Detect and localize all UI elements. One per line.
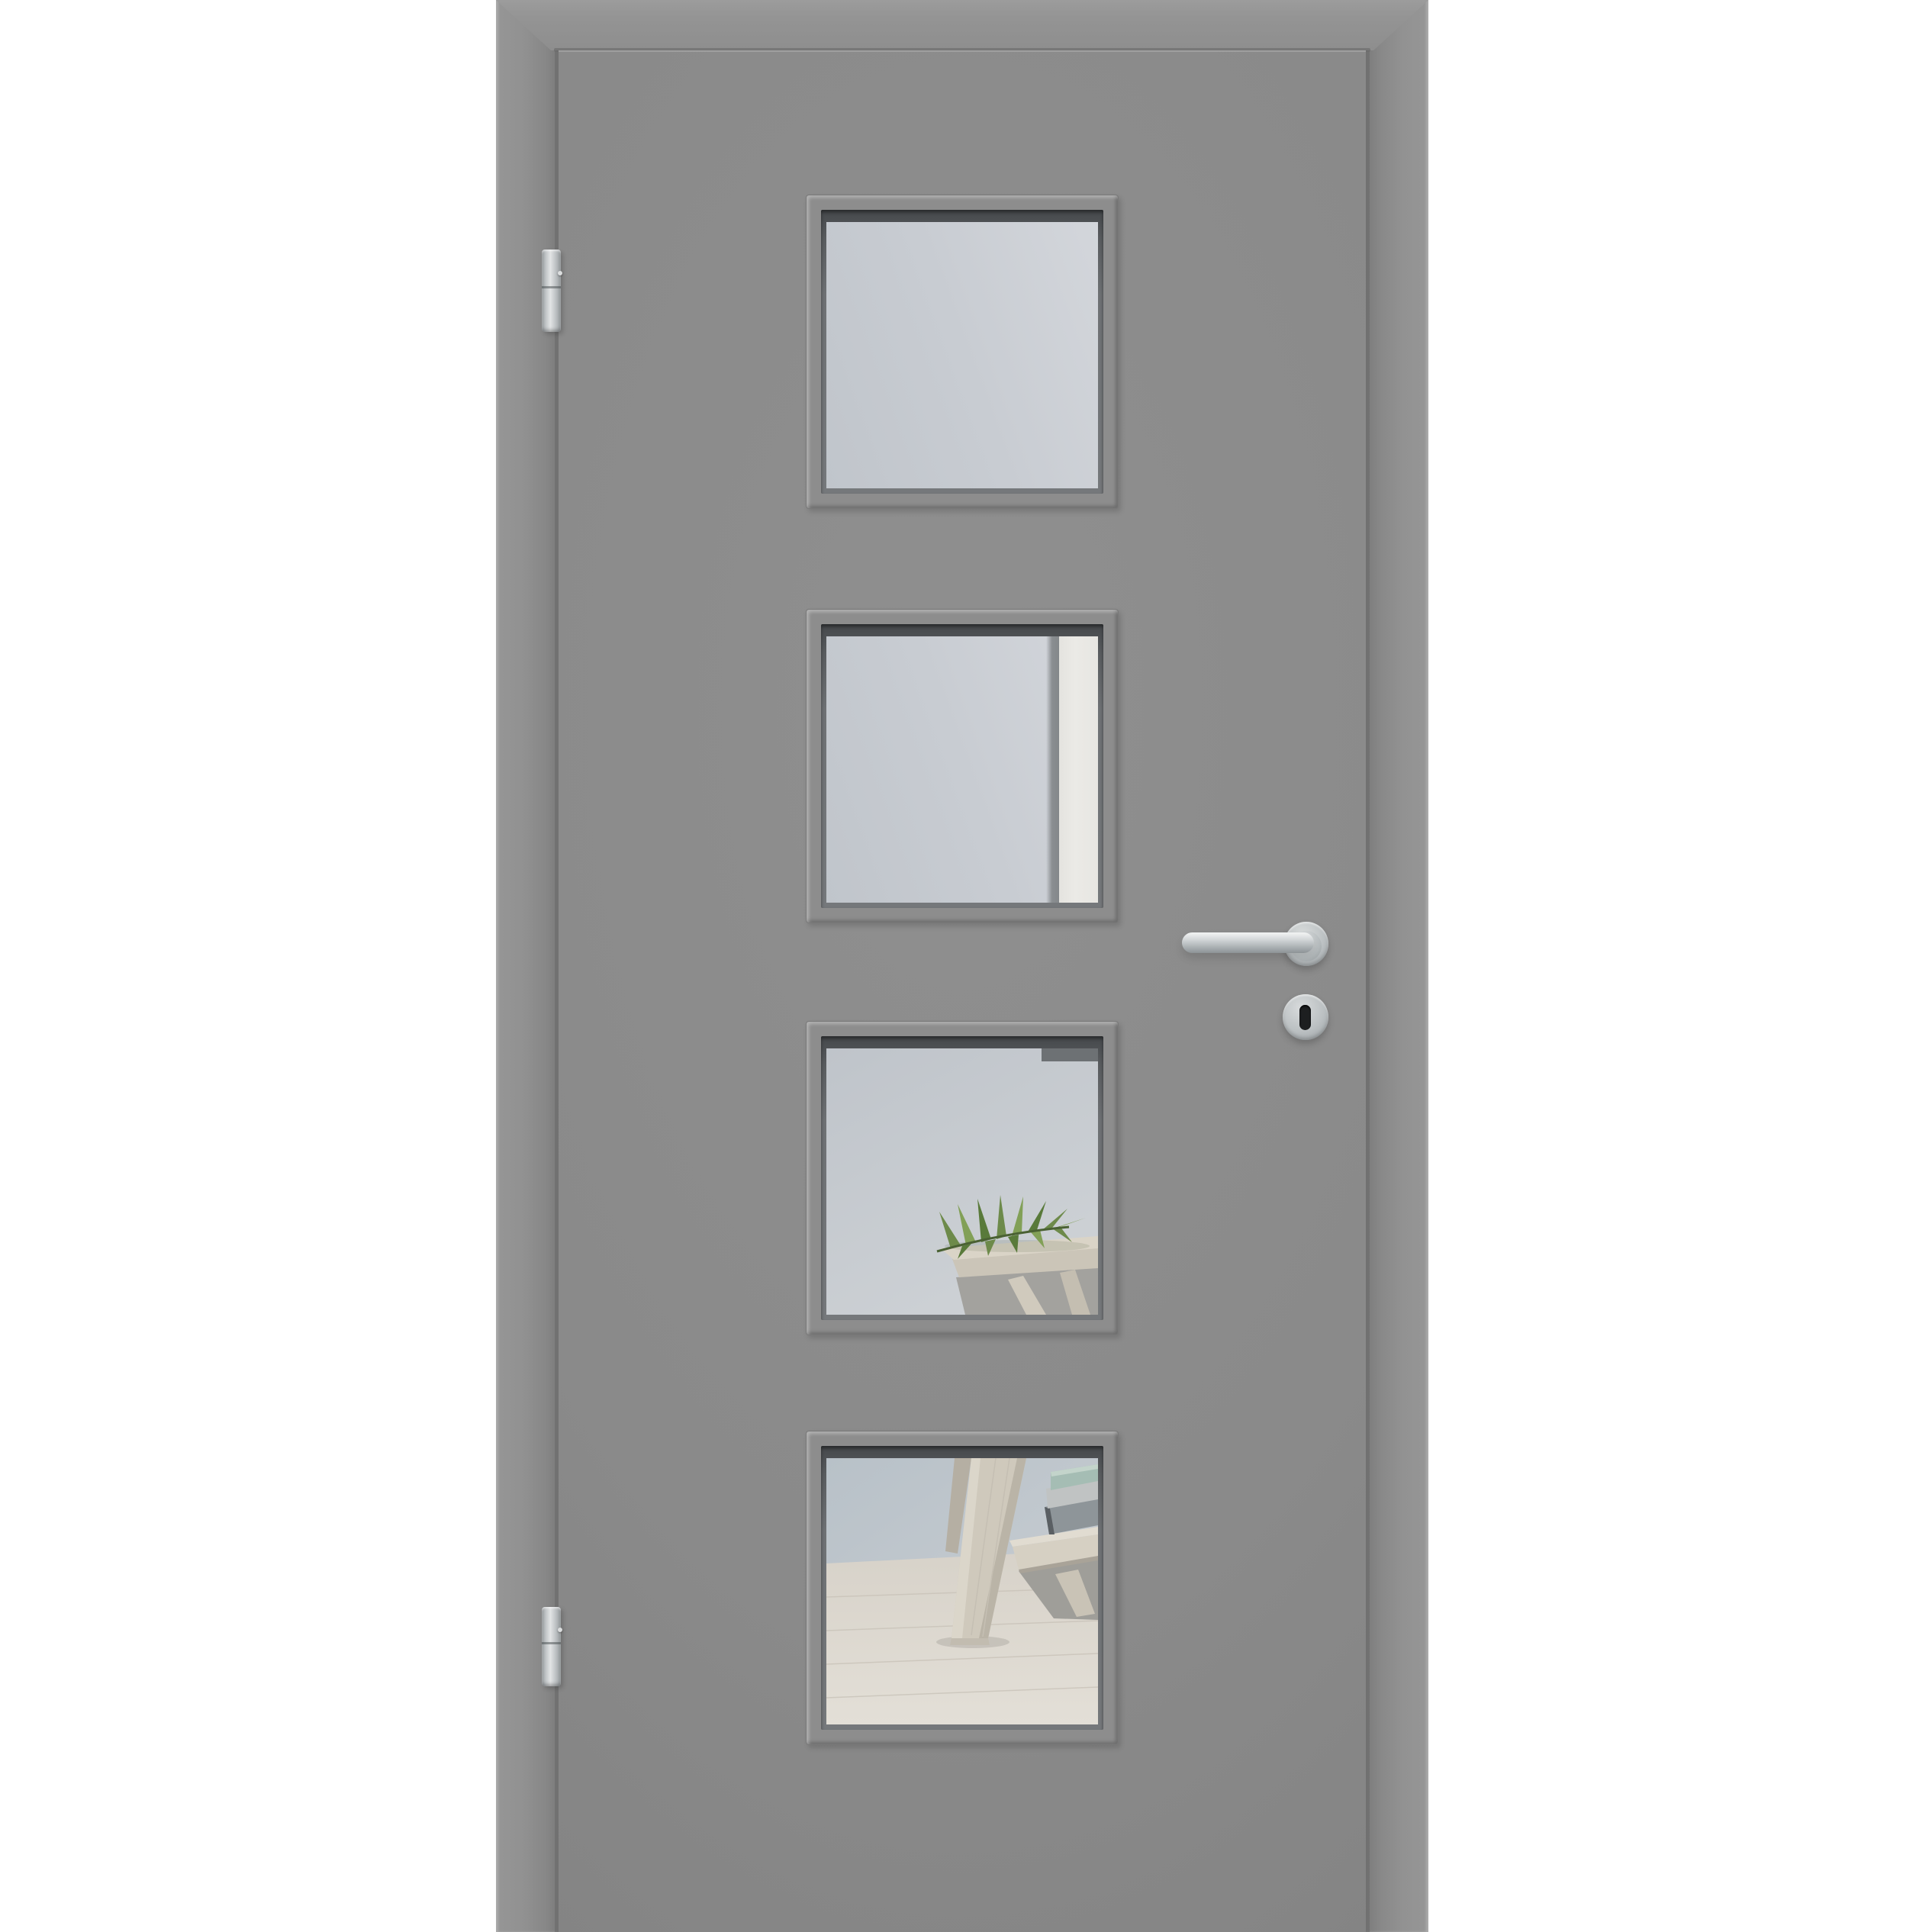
- pane-1-glass: [826, 222, 1098, 488]
- glazing-pane-2: [806, 609, 1119, 923]
- pane-2-glass: [826, 636, 1098, 903]
- glazing-pane-3: [806, 1021, 1119, 1335]
- book-stack: [1045, 1464, 1098, 1534]
- reflection-white-strip: [1059, 636, 1098, 903]
- frame-door-gap-right: [1366, 50, 1370, 1932]
- product-photo: [0, 0, 1932, 1932]
- hinge-top: [542, 250, 561, 332]
- pane-4-glass: [826, 1458, 1098, 1724]
- glazing-pane-1: [806, 195, 1119, 509]
- lever-handle: [1182, 932, 1314, 953]
- frame-lintel: [496, 0, 1428, 50]
- pane-3-reflection: [826, 1048, 1098, 1315]
- dark-object-reflection: [1042, 1048, 1098, 1061]
- hinge-bottom: [542, 1607, 561, 1686]
- frame-right-jamb: [1366, 0, 1428, 1932]
- keyhole-icon: [1299, 1005, 1311, 1030]
- reflection-gray-strip: [1046, 636, 1059, 903]
- keyhole-escutcheon: [1283, 994, 1328, 1040]
- glazing-pane-4: [806, 1431, 1119, 1745]
- pane-4-reflection: [826, 1458, 1098, 1724]
- pane-3-glass: [826, 1048, 1098, 1315]
